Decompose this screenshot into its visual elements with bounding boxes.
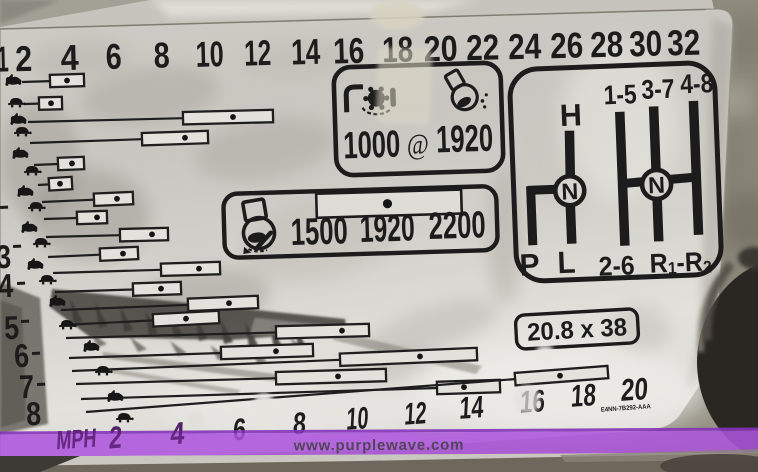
svg-text:N: N <box>648 172 666 199</box>
svg-text:4: 4 <box>170 415 186 451</box>
svg-text:L: L <box>557 245 576 281</box>
svg-text:24: 24 <box>508 25 542 67</box>
svg-text:8: 8 <box>25 395 41 433</box>
svg-text:28: 28 <box>590 23 624 65</box>
svg-text:1000: 1000 <box>343 124 401 168</box>
svg-text:1500: 1500 <box>290 210 348 254</box>
svg-text:3-7: 3-7 <box>641 74 675 105</box>
svg-text:20: 20 <box>620 371 649 408</box>
svg-text:4: 4 <box>60 37 79 78</box>
svg-text:2: 2 <box>108 419 123 455</box>
svg-text:H: H <box>559 97 582 133</box>
svg-text:12: 12 <box>244 32 272 74</box>
svg-text:MPH: MPH <box>56 423 97 456</box>
svg-text:30: 30 <box>629 22 663 64</box>
svg-text:1920: 1920 <box>359 207 415 251</box>
svg-text:10: 10 <box>195 33 224 75</box>
svg-text:4-8: 4-8 <box>680 68 714 99</box>
svg-text:1920: 1920 <box>436 118 494 162</box>
svg-text:4: 4 <box>0 267 14 305</box>
svg-text:N: N <box>561 178 579 205</box>
svg-text:6: 6 <box>105 36 122 77</box>
svg-text:18: 18 <box>570 377 597 414</box>
svg-text:20.8 x 38: 20.8 x 38 <box>526 313 627 347</box>
svg-text:2-6: 2-6 <box>598 250 635 281</box>
svg-text:2200: 2200 <box>428 204 486 248</box>
svg-text:@: @ <box>406 129 429 162</box>
svg-text:1-5: 1-5 <box>603 79 637 110</box>
svg-text:32: 32 <box>667 22 701 64</box>
svg-text:14: 14 <box>459 389 485 426</box>
svg-text:1: 1 <box>0 38 9 79</box>
svg-text:2: 2 <box>15 38 33 79</box>
svg-text:P: P <box>519 247 540 283</box>
svg-text:12: 12 <box>404 395 428 432</box>
svg-text:8: 8 <box>153 34 170 75</box>
svg-text:14: 14 <box>291 31 321 73</box>
svg-text:www.purplewave.com: www.purplewave.com <box>293 437 465 455</box>
svg-text:26: 26 <box>550 24 584 66</box>
